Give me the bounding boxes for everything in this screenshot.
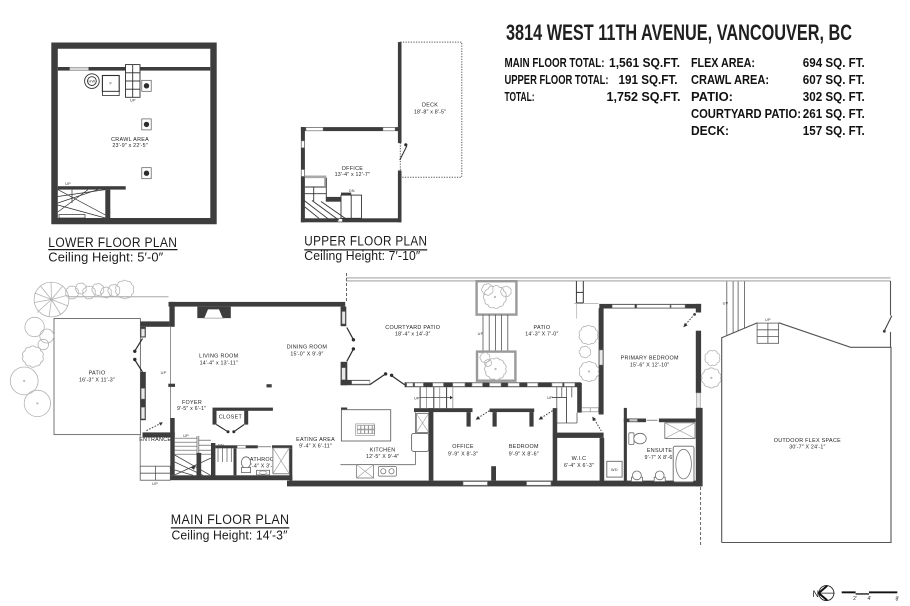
svg-text:13′-4″ x 12′-7″: 13′-4″ x 12′-7″ bbox=[335, 172, 371, 178]
svg-text:15′-6″ X 12′-10″: 15′-6″ X 12′-10″ bbox=[630, 363, 670, 369]
svg-text:1,752 SQ.FT.: 1,752 SQ.FT. bbox=[607, 89, 681, 104]
svg-text:UP: UP bbox=[161, 371, 167, 375]
svg-text:KITCHEN: KITCHEN bbox=[370, 448, 396, 454]
svg-text:2′: 2′ bbox=[853, 596, 857, 602]
svg-text:CLOSET: CLOSET bbox=[219, 415, 243, 421]
svg-text:HW: HW bbox=[89, 80, 96, 84]
svg-text:UP: UP bbox=[478, 332, 484, 336]
svg-text:MAIN FLOOR TOTAL:: MAIN FLOOR TOTAL: bbox=[505, 55, 605, 70]
svg-text:BEDROOM: BEDROOM bbox=[509, 444, 539, 450]
svg-text:9′-9″ X 8′-6″: 9′-9″ X 8′-6″ bbox=[509, 451, 539, 457]
svg-text:30′-7″ X 24′-1″: 30′-7″ X 24′-1″ bbox=[789, 445, 825, 451]
svg-text:CRAWL AREA: CRAWL AREA bbox=[111, 137, 149, 143]
svg-text:WD: WD bbox=[611, 468, 618, 472]
svg-text:ENSUITE: ENSUITE bbox=[647, 448, 673, 454]
svg-text:OUTDOOR FLEX SPACE: OUTDOOR FLEX SPACE bbox=[774, 438, 841, 444]
svg-text:191 SQ.FT.: 191 SQ.FT. bbox=[619, 72, 678, 87]
svg-text:16′-3″ X 11′-3″: 16′-3″ X 11′-3″ bbox=[79, 377, 115, 383]
svg-text:DINING ROOM: DINING ROOM bbox=[287, 345, 328, 351]
svg-text:4′: 4′ bbox=[867, 596, 871, 602]
svg-text:6′-4″ X 6′-3″: 6′-4″ X 6′-3″ bbox=[564, 463, 594, 469]
svg-text:ENTRANCE: ENTRANCE bbox=[139, 437, 171, 443]
svg-text:UP: UP bbox=[152, 482, 158, 486]
svg-text:PATIO: PATIO bbox=[89, 370, 106, 376]
svg-text:694 SQ. FT.: 694 SQ. FT. bbox=[803, 55, 865, 70]
svg-text:LIVING ROOM: LIVING ROOM bbox=[199, 354, 238, 360]
svg-text:18′-4″ x 14′-3″: 18′-4″ x 14′-3″ bbox=[395, 331, 431, 337]
svg-text:9′-4″ X 6′-11″: 9′-4″ X 6′-11″ bbox=[299, 444, 332, 450]
svg-text:14′-3″ X 7′-0″: 14′-3″ X 7′-0″ bbox=[525, 332, 558, 338]
svg-text:157 SQ. FT.: 157 SQ. FT. bbox=[803, 123, 865, 138]
svg-text:302 SQ. FT.: 302 SQ. FT. bbox=[803, 89, 865, 104]
svg-text:1,561 SQ.FT.: 1,561 SQ.FT. bbox=[609, 55, 680, 70]
svg-text:COURTYARD PATIO: COURTYARD PATIO bbox=[385, 325, 440, 331]
svg-text:UPPER FLOOR TOTAL:: UPPER FLOOR TOTAL: bbox=[505, 72, 609, 87]
svg-text:9′-5″ x 6′-1″: 9′-5″ x 6′-1″ bbox=[177, 406, 206, 412]
svg-text:9′-9″ X 8′-3″: 9′-9″ X 8′-3″ bbox=[448, 451, 478, 457]
svg-text:8′: 8′ bbox=[895, 596, 899, 602]
svg-text:261 SQ. FT.: 261 SQ. FT. bbox=[803, 106, 865, 121]
svg-text:Ceiling Height: 14′-3″: Ceiling Height: 14′-3″ bbox=[172, 528, 288, 543]
svg-text:FOYER: FOYER bbox=[182, 400, 202, 406]
svg-text:3814 WEST 11TH AVENUE, VANCOUV: 3814 WEST 11TH AVENUE, VANCOUVER, BC bbox=[506, 20, 852, 45]
svg-text:15′-0″ X 9′-9″: 15′-0″ X 9′-9″ bbox=[290, 351, 323, 357]
svg-text:CRAWL AREA:: CRAWL AREA: bbox=[691, 72, 769, 87]
svg-text:607 SQ. FT.: 607 SQ. FT. bbox=[803, 72, 865, 87]
svg-text:PATIO:: PATIO: bbox=[691, 89, 733, 104]
svg-text:Ceiling Height: 5′-0″: Ceiling Height: 5′-0″ bbox=[48, 249, 163, 264]
svg-text:FLEX AREA:: FLEX AREA: bbox=[691, 55, 755, 70]
svg-text:UP: UP bbox=[65, 182, 71, 186]
svg-text:9′-7″ X 8′-6″: 9′-7″ X 8′-6″ bbox=[645, 455, 675, 461]
svg-text:PRIMARY BEDROOM: PRIMARY BEDROOM bbox=[621, 356, 679, 362]
svg-text:UP: UP bbox=[414, 396, 420, 400]
svg-text:UP: UP bbox=[723, 302, 729, 306]
svg-text:UP: UP bbox=[130, 99, 136, 103]
svg-text:Ceiling Height: 7′-10″: Ceiling Height: 7′-10″ bbox=[304, 248, 420, 263]
svg-text:23′-9″ x 22′-5″: 23′-9″ x 22′-5″ bbox=[112, 143, 148, 149]
svg-text:N: N bbox=[813, 589, 820, 599]
svg-text:W.I.C: W.I.C bbox=[572, 456, 587, 462]
svg-text:UP: UP bbox=[547, 396, 553, 400]
svg-text:DECK:: DECK: bbox=[691, 123, 729, 138]
svg-text:18′-8″ x 8′-5″: 18′-8″ x 8′-5″ bbox=[414, 109, 446, 115]
svg-text:OFFICE: OFFICE bbox=[452, 444, 474, 450]
svg-text:EATING AREA: EATING AREA bbox=[296, 437, 335, 443]
svg-text:UP: UP bbox=[183, 434, 189, 438]
svg-text:14′-4″ x 13′-11″: 14′-4″ x 13′-11″ bbox=[200, 361, 238, 367]
svg-text:DECK: DECK bbox=[422, 103, 438, 109]
svg-text:PATIO: PATIO bbox=[533, 325, 550, 331]
svg-text:12′-5″ X 9′-4″: 12′-5″ X 9′-4″ bbox=[366, 454, 399, 460]
svg-text:UP: UP bbox=[765, 318, 771, 322]
svg-text:MAIN FLOOR PLAN: MAIN FLOOR PLAN bbox=[171, 512, 289, 528]
svg-text:TOTAL:: TOTAL: bbox=[505, 89, 535, 104]
svg-text:OFFICE: OFFICE bbox=[342, 166, 364, 172]
svg-text:DN: DN bbox=[349, 189, 355, 193]
svg-text:COURTYARD PATIO:: COURTYARD PATIO: bbox=[691, 106, 801, 121]
